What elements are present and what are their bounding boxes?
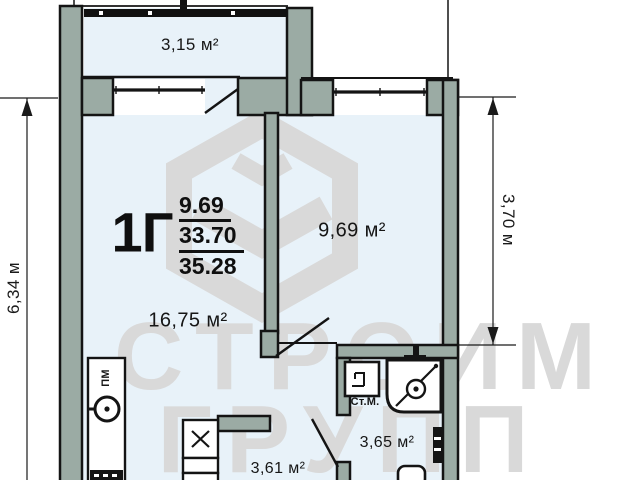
- wall-right: [443, 80, 458, 480]
- wall-pier-bedroom-left: [301, 80, 333, 115]
- toilet-icon: [398, 466, 425, 480]
- wall-hallway: [218, 416, 270, 431]
- area-value-middle: 33.70: [179, 222, 244, 252]
- bathroom-fixtures: [345, 345, 442, 480]
- dimension-left-label: 6,34 м: [4, 262, 24, 314]
- living-area-label: 16,75 м²: [148, 310, 227, 333]
- cabinet-x-icon: [183, 420, 218, 480]
- wall-bathroom-top: [337, 345, 458, 358]
- hatched-stove-icon: [90, 470, 123, 480]
- wall-pier-living-left: [82, 78, 113, 115]
- bedroom-door-leaf: [276, 318, 329, 356]
- washing-machine-label: Ст.М.: [351, 396, 380, 408]
- radiator-vent-icon: [433, 427, 442, 463]
- bathroom-area-label: 3,65 м²: [360, 434, 415, 452]
- wall-bathroom-left-lower: [337, 462, 350, 480]
- hallway-area-label: 3,61 м²: [251, 460, 306, 478]
- area-value-top: 9.69: [179, 192, 231, 222]
- wall-inner-stub: [261, 331, 278, 357]
- washing-machine-icon: [345, 362, 379, 396]
- balcony-railing: [84, 0, 287, 17]
- dimension-right-label: 3,70 м: [498, 194, 518, 246]
- apartment-area-values: 9.69 33.70 35.28: [179, 192, 244, 280]
- bathroom-door-leaf: [312, 419, 338, 467]
- area-value-bottom: 35.28: [179, 253, 244, 280]
- balcony-area-label: 3,15 м²: [161, 35, 219, 55]
- bedroom-area-label: 9,69 м²: [318, 220, 386, 243]
- floor-plan: СТРОИМ ГРУПП: [0, 0, 640, 480]
- apartment-type-label: 1Г: [112, 200, 173, 265]
- wall-left: [60, 6, 82, 480]
- wall-inner-vertical: [265, 113, 278, 333]
- balcony-door-leaf: [205, 89, 238, 113]
- dishwasher-label: ПМ: [100, 369, 112, 386]
